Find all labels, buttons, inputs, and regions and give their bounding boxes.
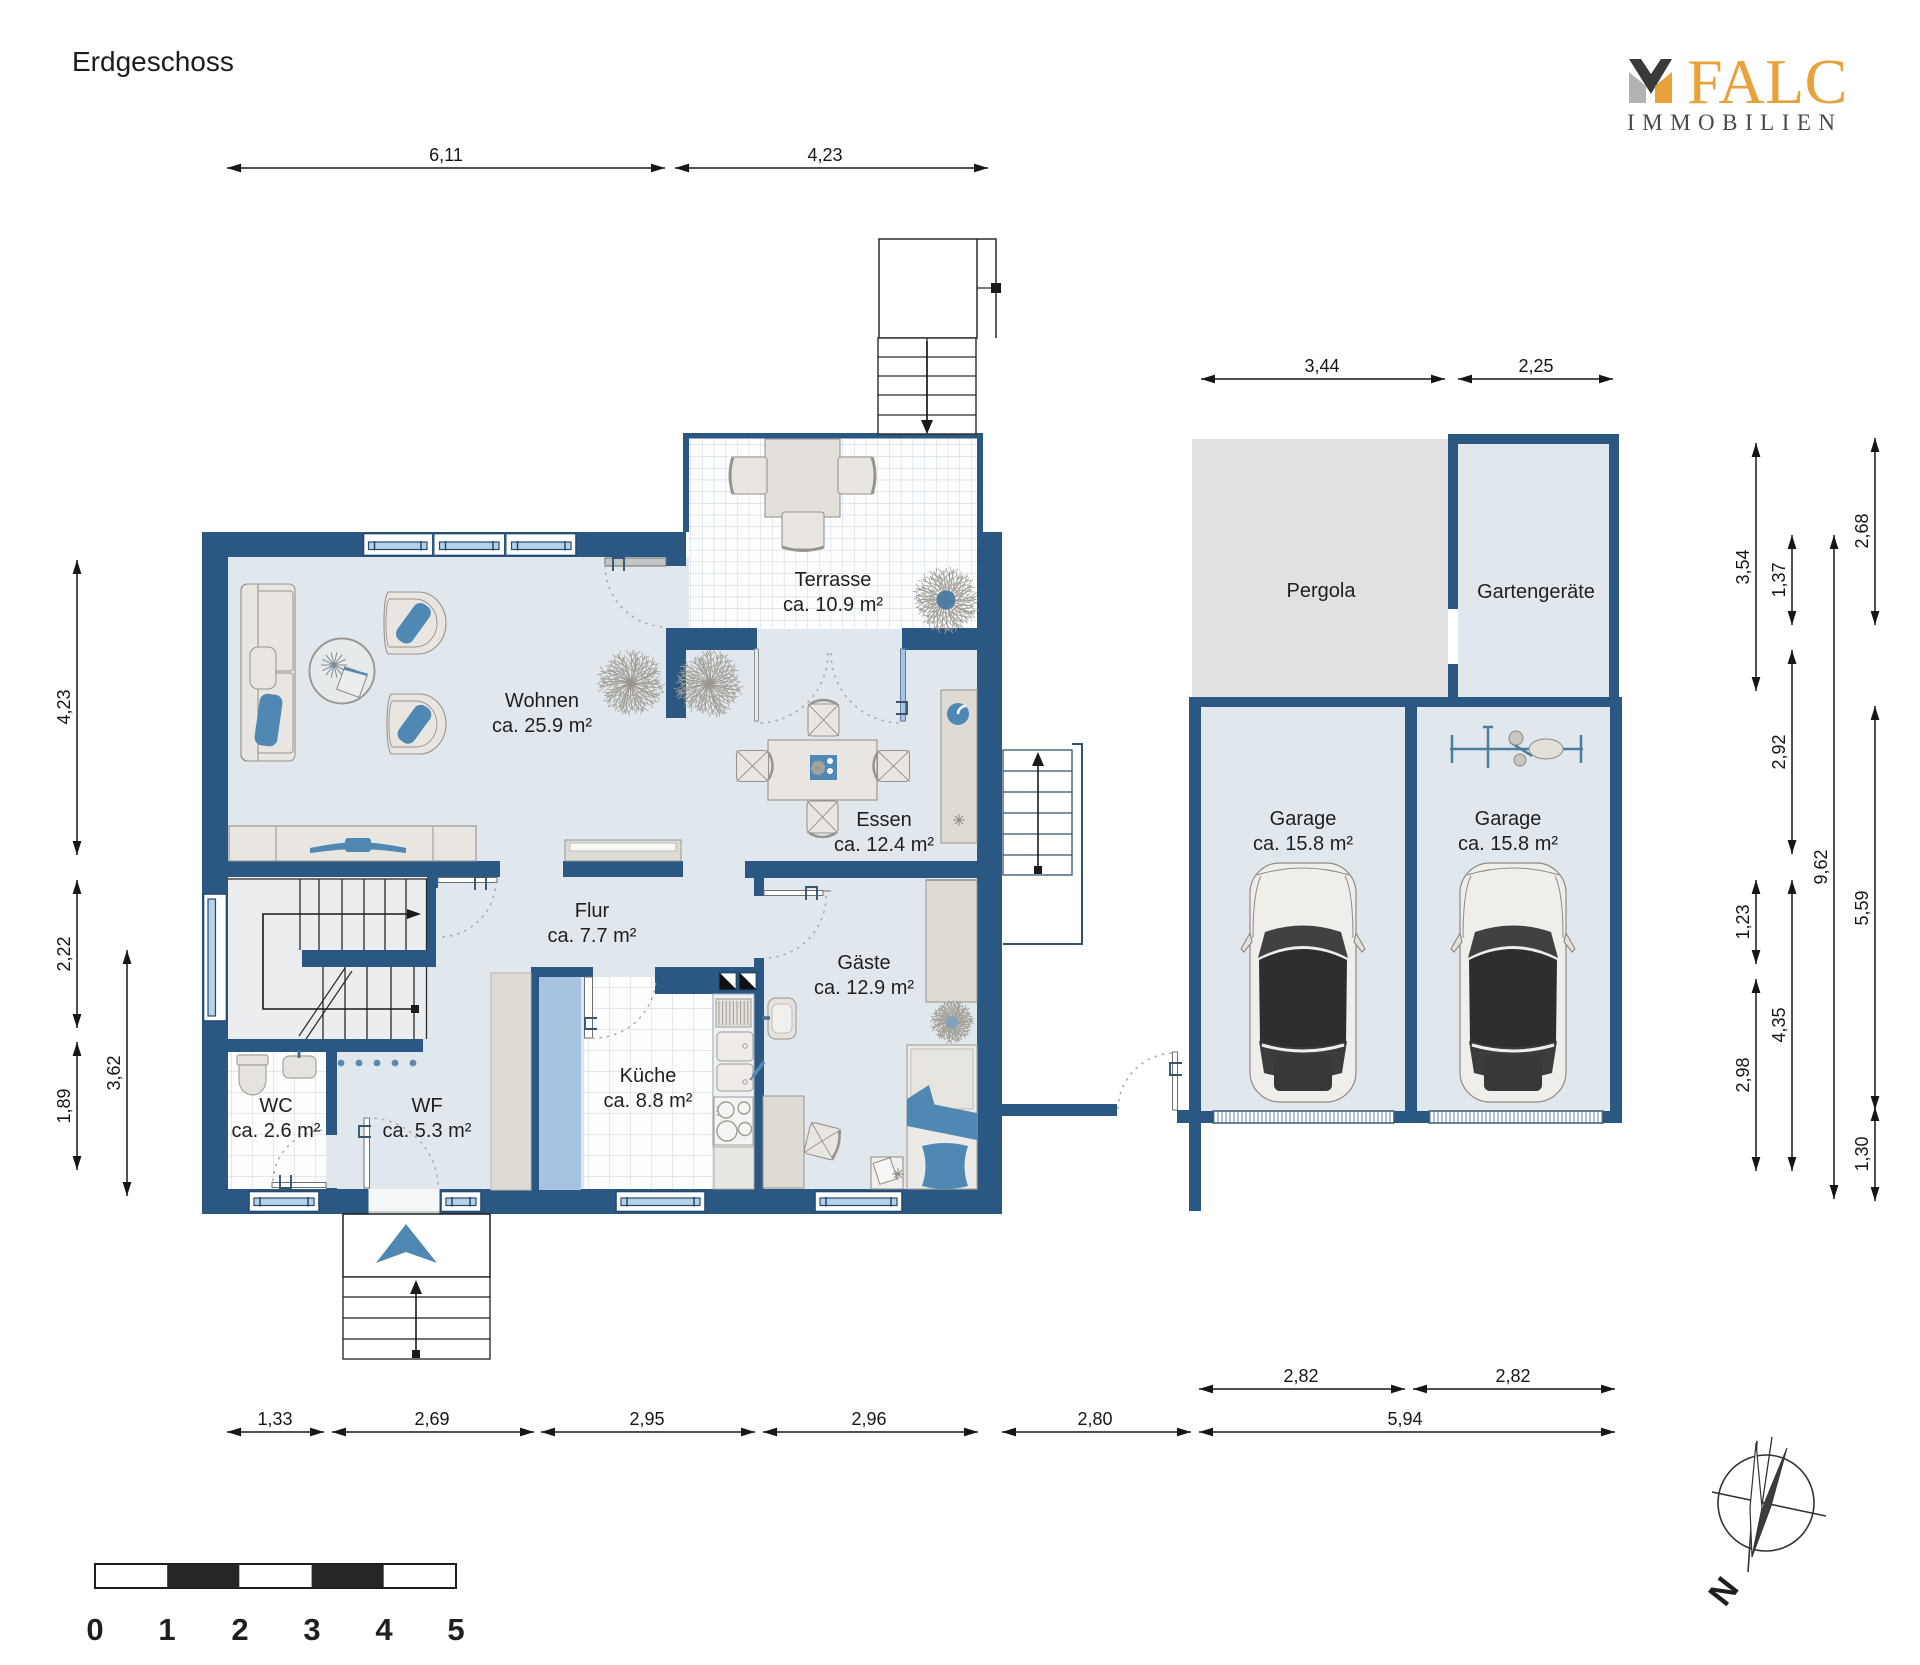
svg-text:ca. 15.8 m²: ca. 15.8 m² [1253, 833, 1353, 855]
svg-text:Gäste: Gäste [837, 952, 890, 974]
svg-text:ca. 2.6 m²: ca. 2.6 m² [232, 1120, 321, 1142]
svg-text:ca. 12.9 m²: ca. 12.9 m² [814, 977, 914, 999]
svg-text:FALC: FALC [1687, 46, 1848, 117]
svg-text:2,92: 2,92 [1769, 734, 1789, 769]
svg-text:Gartengeräte: Gartengeräte [1477, 581, 1595, 603]
svg-text:1: 1 [158, 1612, 175, 1647]
svg-text:2,96: 2,96 [851, 1409, 886, 1429]
svg-text:3: 3 [303, 1612, 320, 1647]
svg-text:5,59: 5,59 [1852, 890, 1872, 925]
svg-text:2,68: 2,68 [1852, 513, 1872, 548]
svg-text:2,80: 2,80 [1077, 1409, 1112, 1429]
svg-text:WC: WC [259, 1095, 292, 1117]
svg-text:3,62: 3,62 [104, 1055, 124, 1090]
svg-text:ca. 25.9 m²: ca. 25.9 m² [492, 715, 592, 737]
svg-text:ca. 7.7 m²: ca. 7.7 m² [548, 925, 637, 947]
svg-text:Terrasse: Terrasse [795, 569, 872, 591]
svg-text:ca. 10.9 m²: ca. 10.9 m² [783, 594, 883, 616]
svg-text:2,22: 2,22 [54, 936, 74, 971]
svg-text:Wohnen: Wohnen [505, 690, 579, 712]
svg-text:ca. 8.8 m²: ca. 8.8 m² [604, 1090, 693, 1112]
svg-text:2: 2 [231, 1612, 248, 1647]
svg-text:4,23: 4,23 [54, 689, 74, 724]
svg-text:4: 4 [375, 1612, 393, 1647]
svg-text:6,11: 6,11 [429, 145, 463, 165]
svg-text:Küche: Küche [620, 1065, 677, 1087]
svg-text:4,23: 4,23 [807, 145, 842, 165]
svg-text:2,25: 2,25 [1518, 356, 1553, 376]
svg-text:3,44: 3,44 [1304, 356, 1339, 376]
svg-text:2,82: 2,82 [1283, 1366, 1318, 1386]
svg-text:5: 5 [447, 1612, 464, 1647]
svg-text:3,54: 3,54 [1733, 549, 1753, 584]
svg-text:ca. 12.4 m²: ca. 12.4 m² [834, 834, 934, 856]
svg-text:4,35: 4,35 [1769, 1007, 1789, 1042]
svg-text:1,89: 1,89 [54, 1088, 74, 1123]
svg-text:Pergola: Pergola [1287, 580, 1357, 602]
svg-text:0: 0 [86, 1612, 103, 1647]
svg-text:1,33: 1,33 [257, 1409, 292, 1429]
svg-text:2,69: 2,69 [414, 1409, 449, 1429]
svg-text:1,23: 1,23 [1733, 904, 1753, 939]
svg-text:IMMOBILIEN: IMMOBILIEN [1627, 110, 1843, 135]
svg-text:1,37: 1,37 [1769, 562, 1789, 597]
svg-text:Essen: Essen [856, 809, 912, 831]
svg-text:2,98: 2,98 [1733, 1057, 1753, 1092]
svg-text:5,94: 5,94 [1387, 1409, 1422, 1429]
svg-text:Flur: Flur [575, 900, 610, 922]
svg-text:2,95: 2,95 [629, 1409, 664, 1429]
svg-text:Garage: Garage [1475, 808, 1542, 830]
svg-text:1,30: 1,30 [1852, 1136, 1872, 1171]
svg-text:2,82: 2,82 [1495, 1366, 1530, 1386]
svg-text:ca. 5.3 m²: ca. 5.3 m² [383, 1120, 472, 1142]
svg-text:ca. 15.8 m²: ca. 15.8 m² [1458, 833, 1558, 855]
svg-text:Erdgeschoss: Erdgeschoss [72, 46, 234, 77]
svg-text:WF: WF [411, 1095, 442, 1117]
svg-text:9,62: 9,62 [1811, 849, 1831, 884]
svg-text:Garage: Garage [1270, 808, 1337, 830]
